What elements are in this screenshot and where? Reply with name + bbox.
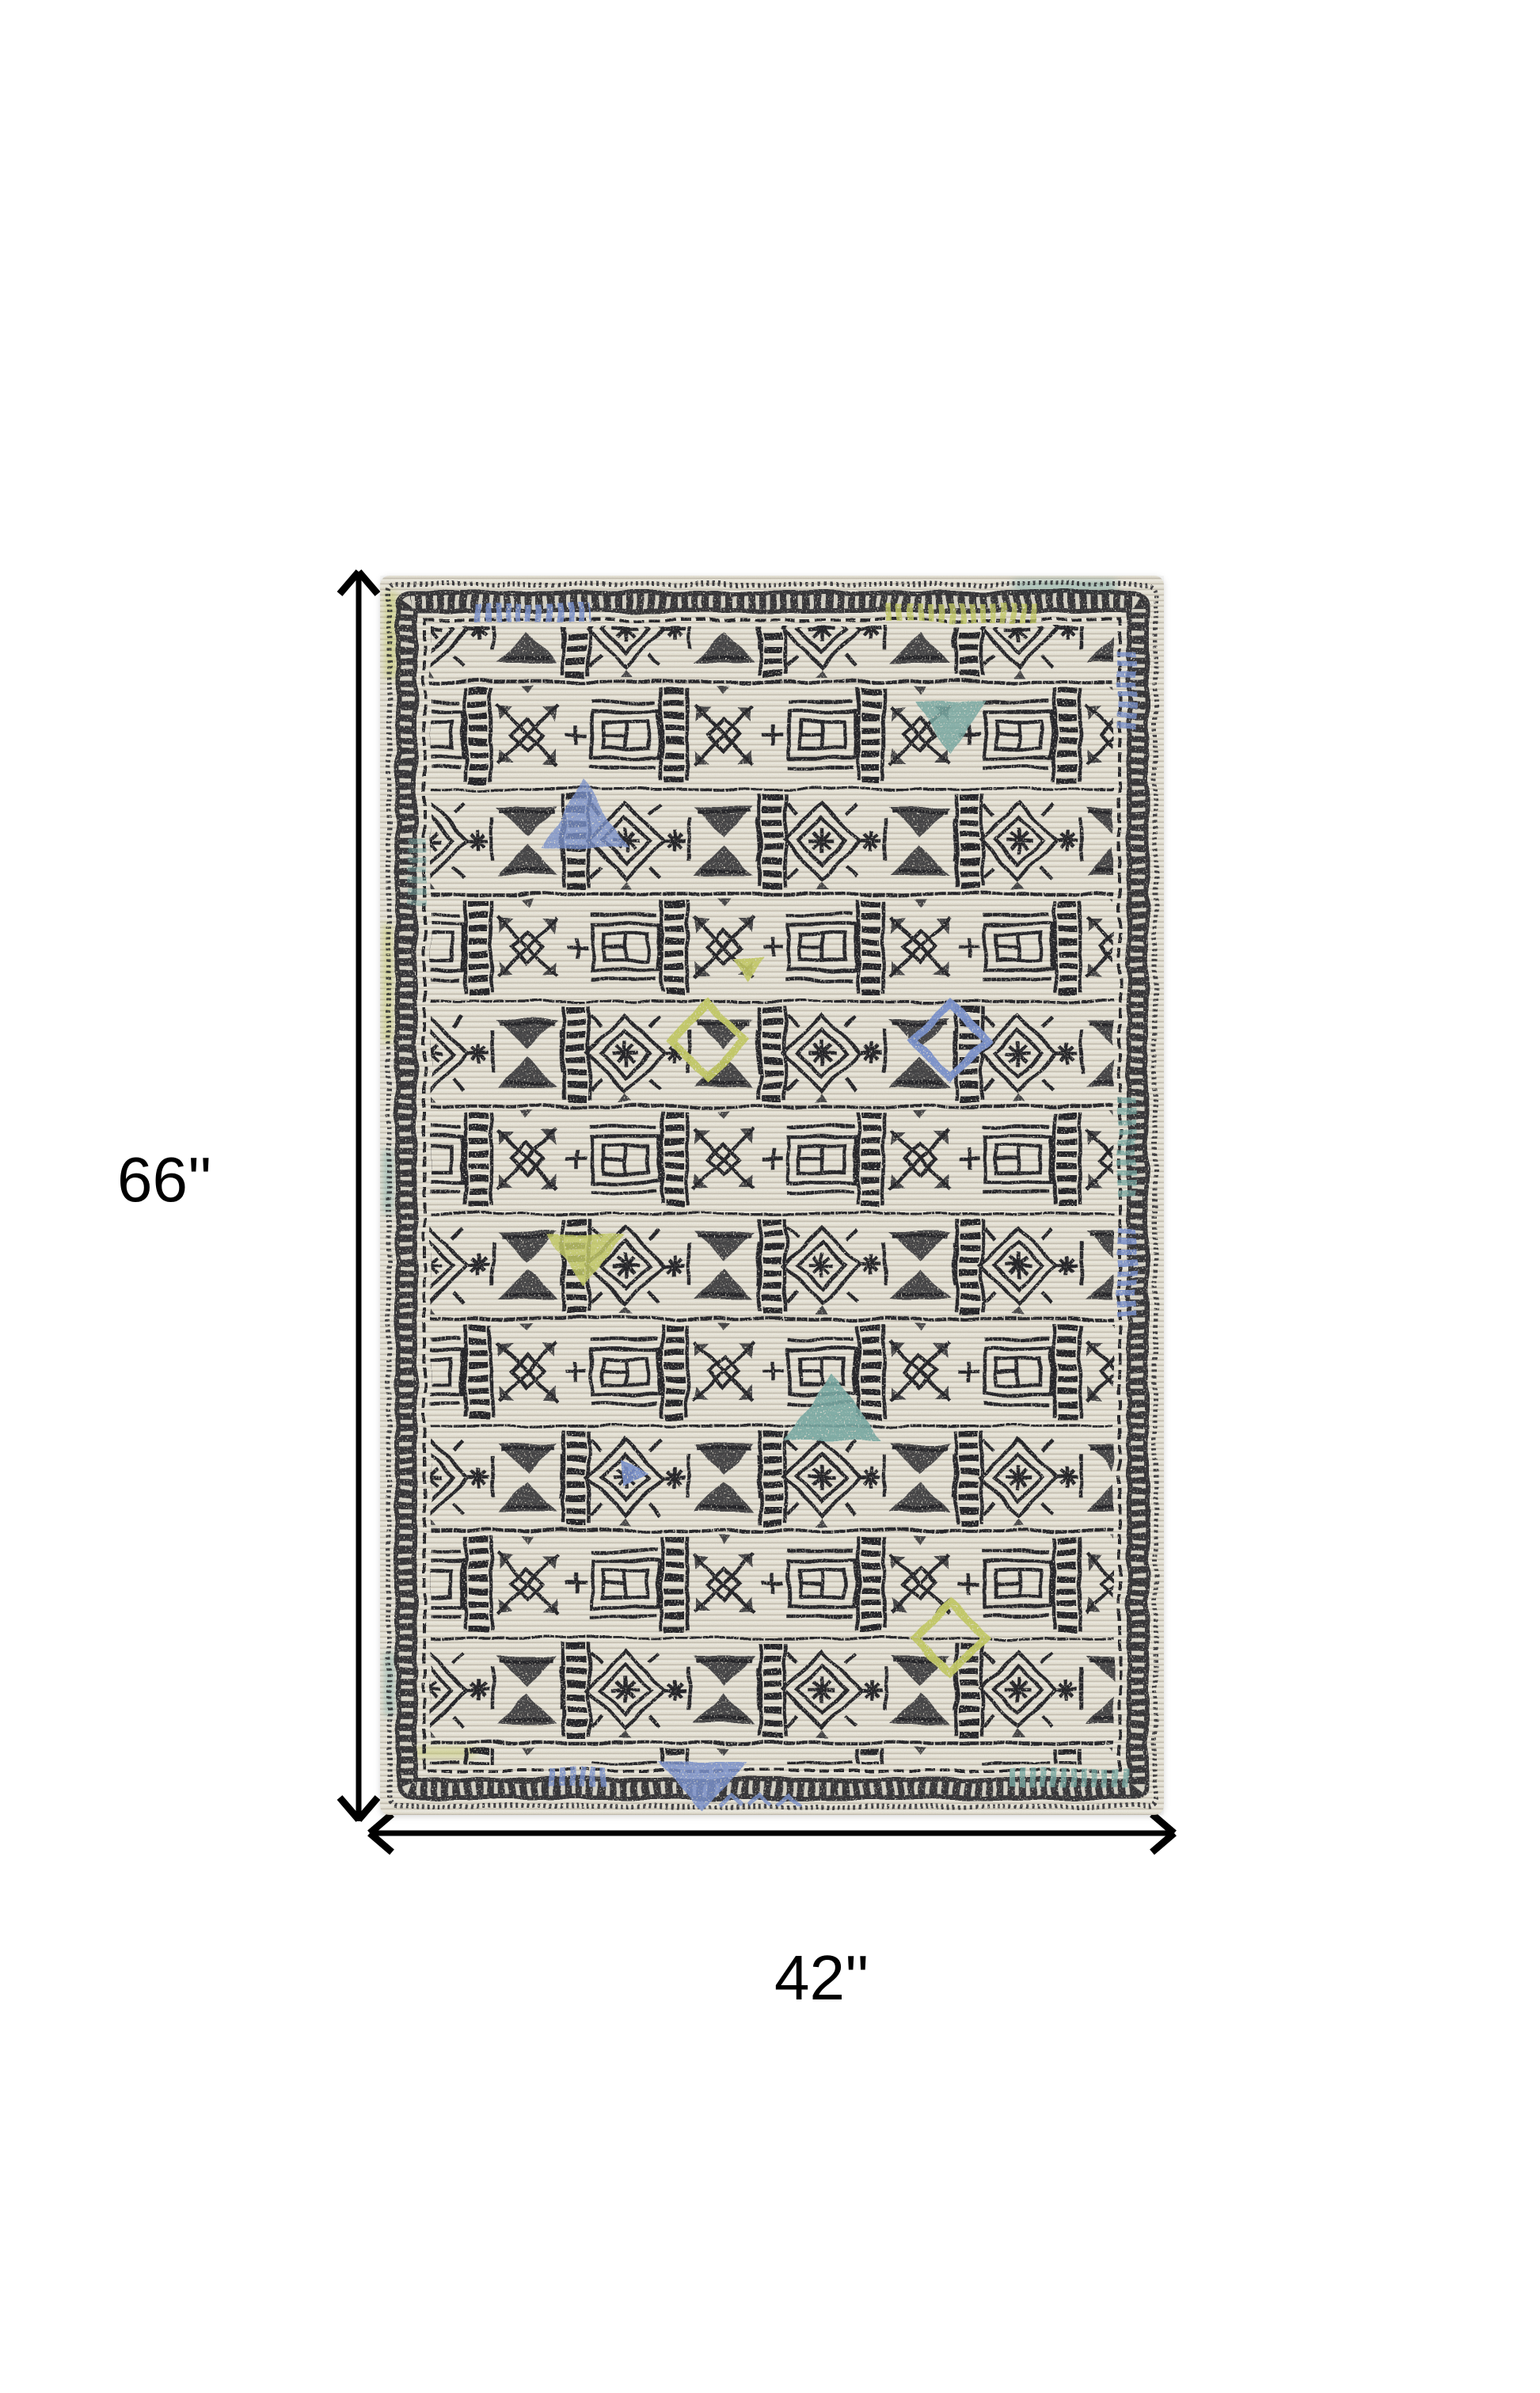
fabric-noise-overlay — [380, 576, 1164, 1815]
height-dimension-label: 66'' — [117, 1148, 212, 1212]
rug-graphic — [380, 576, 1164, 1815]
width-dimension-label: 42'' — [774, 1946, 869, 2010]
rug-image — [380, 576, 1164, 1815]
product-dimension-diagram: 66'' 42'' — [0, 0, 1540, 2393]
